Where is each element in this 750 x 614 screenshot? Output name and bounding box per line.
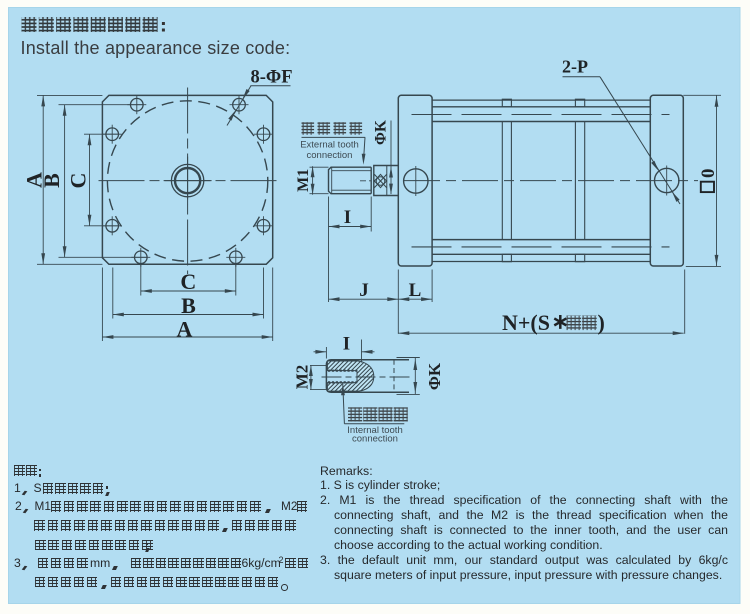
svg-text:A: A	[177, 317, 193, 342]
svg-text:ΦK: ΦK	[425, 362, 444, 390]
svg-text:0: 0	[698, 169, 719, 179]
svg-text:L: L	[409, 280, 422, 301]
svg-text:connection: connection	[307, 150, 353, 161]
svg-text:M1: M1	[295, 169, 312, 192]
svg-text:C: C	[180, 269, 196, 294]
svg-text:connection: connection	[352, 434, 398, 445]
svg-text:2-P: 2-P	[562, 57, 588, 77]
svg-text:B: B	[39, 173, 64, 188]
svg-text:M2: M2	[293, 365, 312, 390]
svg-text:N+(S: N+(S	[502, 310, 550, 335]
svg-text:∗: ∗	[552, 310, 570, 334]
svg-text:External tooth: External tooth	[300, 140, 359, 151]
svg-text:Install the appearance size co: Install the appearance size code:	[21, 38, 291, 58]
svg-text:ΦK: ΦK	[373, 120, 390, 145]
svg-text:8-ΦF: 8-ΦF	[251, 68, 293, 88]
svg-text:B: B	[181, 293, 196, 318]
svg-text:I: I	[344, 207, 351, 228]
svg-text:): )	[598, 310, 605, 335]
svg-text:I: I	[343, 333, 350, 354]
svg-text:J: J	[359, 280, 369, 301]
svg-text:C: C	[66, 173, 91, 189]
